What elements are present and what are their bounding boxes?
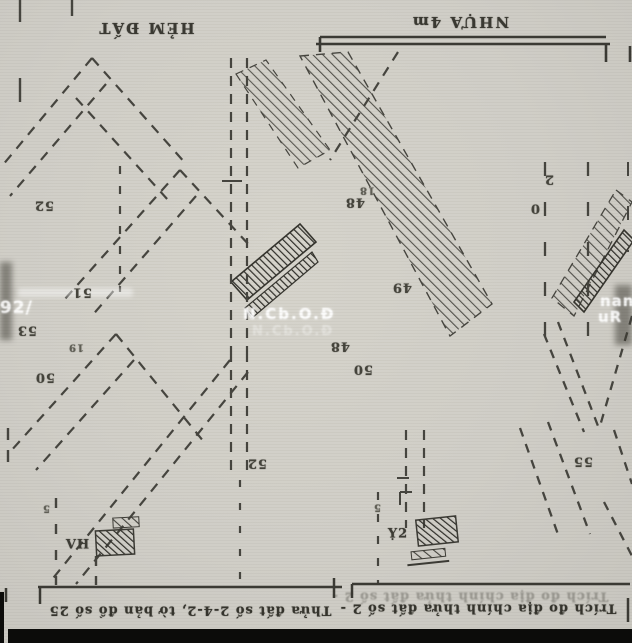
parcel-label: 0	[530, 201, 540, 216]
parcel-label: 52	[247, 456, 267, 471]
boundary-lines-left	[2, 58, 250, 584]
parcel-label: 50	[35, 370, 55, 385]
parcel-label: 51	[72, 285, 92, 300]
scanned-survey-map: HẺM ĐẤT NHỰA 4m 52 51 53 19 50 48 18 49 …	[0, 0, 632, 643]
parcel-label: 50	[353, 362, 373, 377]
parcel-label: 2	[544, 172, 554, 187]
parcel-label: 5	[373, 502, 381, 513]
bottom-note-right: Trích đo địa chính thửa đất số 2 -	[340, 601, 617, 616]
scan-black-bar-bottom	[8, 629, 632, 643]
street-title-right: NHỰA 4m	[411, 13, 509, 31]
watermark-center: N.Cb.O.Đ	[243, 305, 335, 323]
parcel-label: 19	[68, 342, 84, 353]
bottom-note-left: Thửa đất số 2-4-2, tờ bản đồ số 25	[49, 603, 332, 618]
legend-label-left: VH	[66, 538, 90, 553]
legend-hatch-swatch-left	[95, 517, 141, 556]
watermark-left-edge: 2h92/	[0, 298, 33, 318]
parcel-label: 5	[42, 503, 50, 514]
street-title-left: HẺM ĐẤT	[97, 19, 194, 37]
parcel-label: 49	[392, 280, 412, 295]
parcel-label: 53	[17, 323, 37, 338]
parcel-label: 48	[345, 195, 365, 210]
scan-black-notch-left	[0, 592, 4, 643]
legend-label-right: Ỵ2	[388, 527, 408, 542]
parcel-label: 52	[34, 198, 54, 213]
road-line-lower-center	[378, 430, 424, 585]
legend-hatch-swatch-right	[403, 516, 460, 565]
parcel-label: 55	[573, 454, 593, 469]
parcel-label: 18	[359, 185, 375, 196]
watermark-center-echo: N.Cb.O.Đ	[252, 324, 334, 339]
street-frame-top-right	[316, 37, 630, 62]
parcel-label: 48	[330, 339, 350, 354]
watermark-right-edge-bottom: uR	[598, 308, 622, 326]
